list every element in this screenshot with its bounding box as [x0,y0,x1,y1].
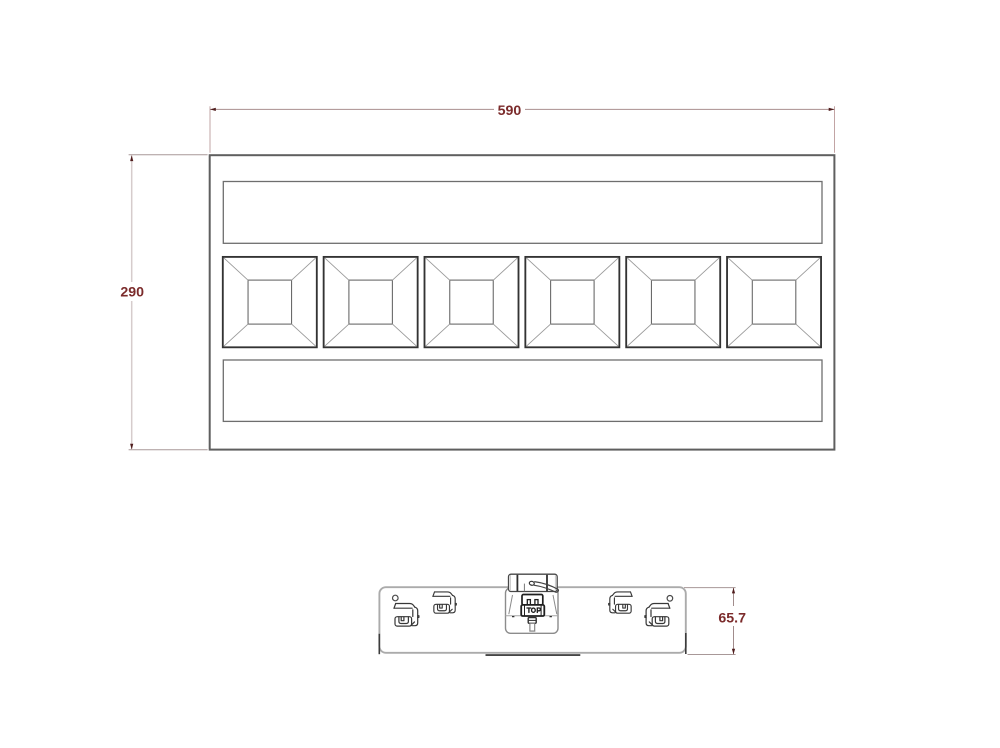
svg-text:590: 590 [498,103,522,119]
svg-text:290: 290 [120,285,144,301]
svg-text:65.7: 65.7 [718,610,746,626]
